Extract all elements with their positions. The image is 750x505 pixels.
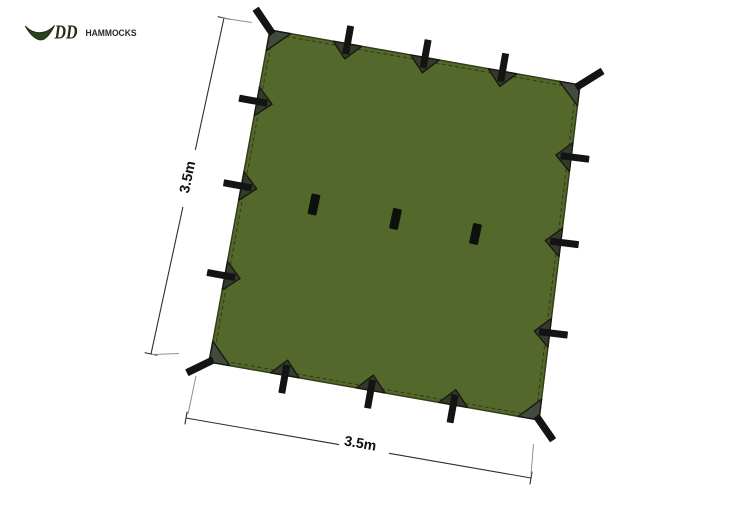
svg-text:DD: DD: [54, 22, 78, 44]
svg-text:HAMMOCKS: HAMMOCKS: [86, 28, 137, 39]
svg-text:3.5m: 3.5m: [177, 160, 199, 195]
svg-text:3.5m: 3.5m: [343, 433, 378, 454]
